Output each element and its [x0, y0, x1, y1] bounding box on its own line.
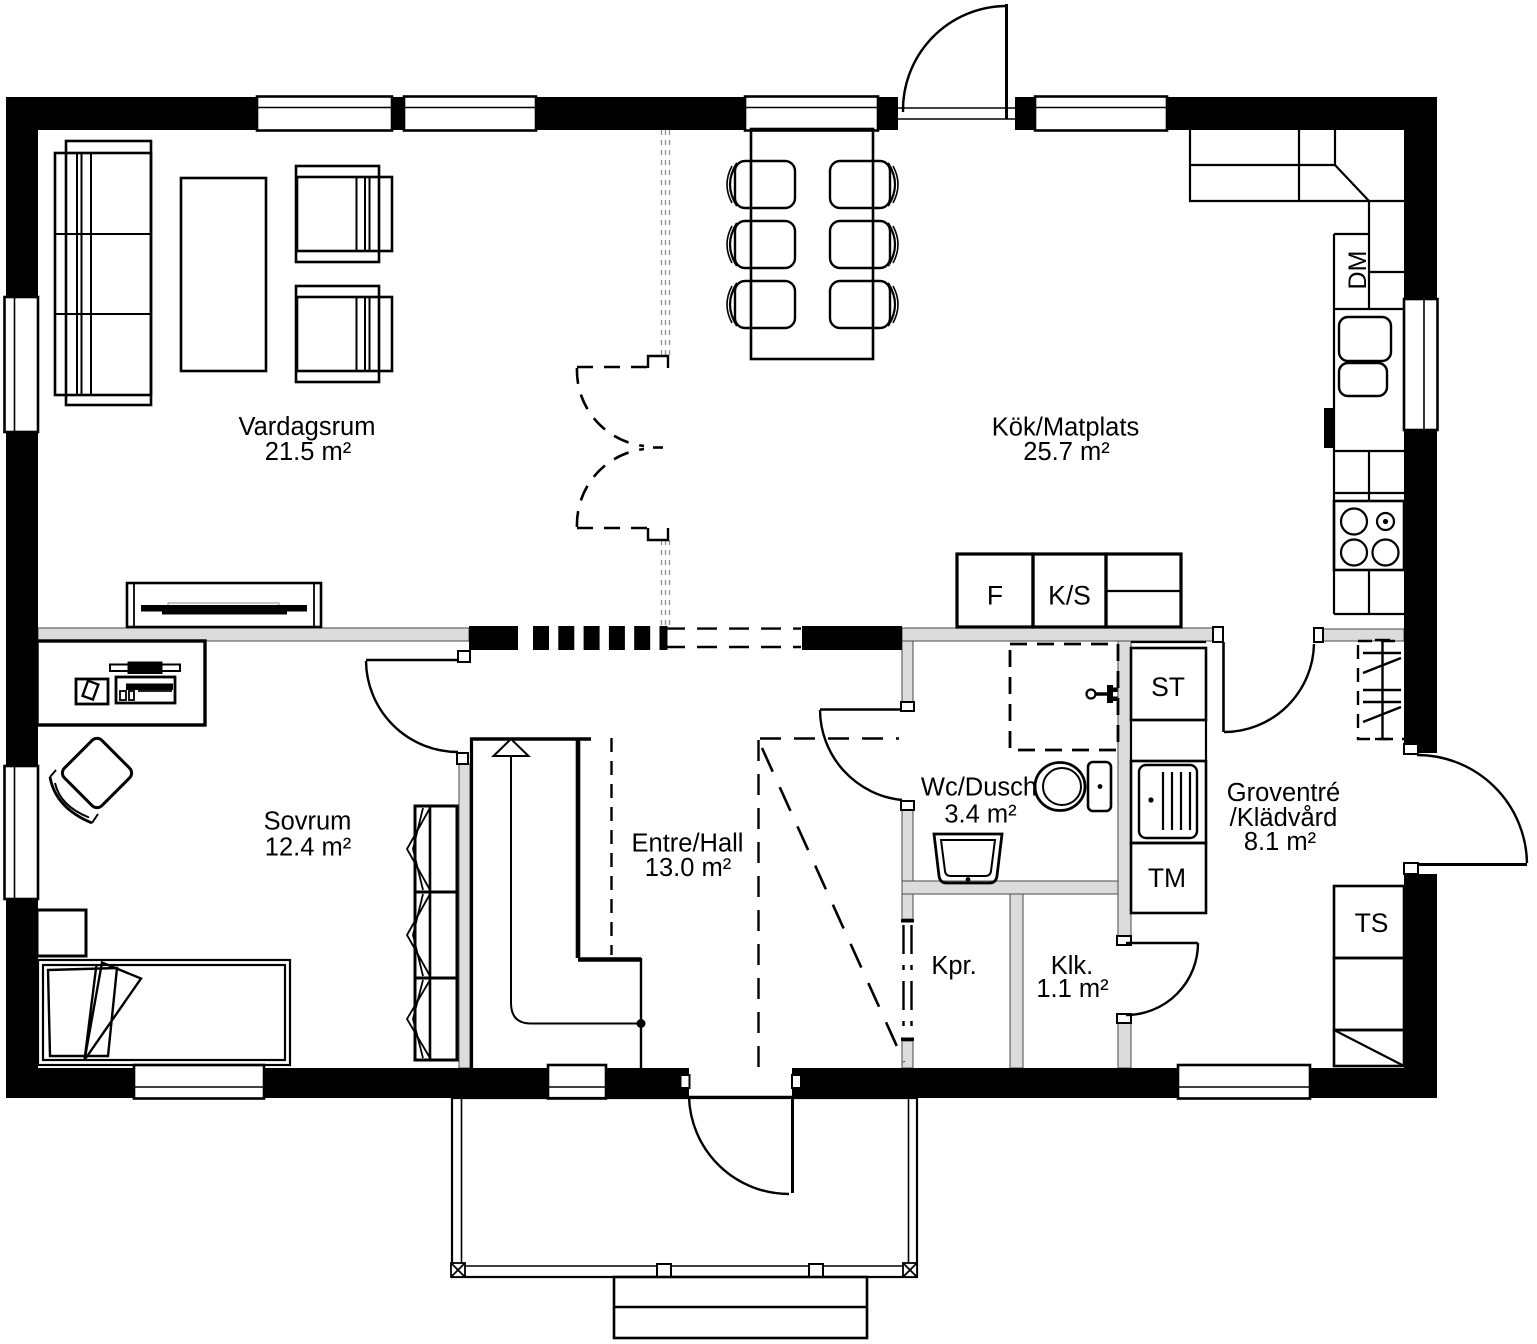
- svg-text:Wc/Dusch: Wc/Dusch: [921, 774, 1037, 802]
- svg-text:Sovrum: Sovrum: [264, 808, 352, 836]
- svg-text:21.5 m²: 21.5 m²: [265, 438, 351, 466]
- svg-text:ST: ST: [1151, 672, 1185, 702]
- svg-text:Vardagsrum: Vardagsrum: [238, 413, 375, 441]
- svg-text:K/S: K/S: [1048, 581, 1091, 611]
- svg-text:TS: TS: [1355, 908, 1389, 938]
- svg-text:12.4 m²: 12.4 m²: [265, 834, 351, 862]
- svg-text:DM: DM: [1344, 251, 1372, 290]
- svg-text:13.0 m²: 13.0 m²: [645, 854, 731, 882]
- svg-text:F: F: [987, 581, 1003, 611]
- svg-text:3.4 m²: 3.4 m²: [944, 801, 1016, 829]
- svg-text:TM: TM: [1148, 863, 1186, 893]
- svg-text:25.7 m²: 25.7 m²: [1023, 438, 1109, 466]
- svg-text:Groventré: Groventré: [1227, 779, 1340, 807]
- svg-text:1.1 m²: 1.1 m²: [1036, 975, 1108, 1003]
- svg-text:Kpr.: Kpr.: [931, 952, 976, 980]
- svg-text:8.1 m²: 8.1 m²: [1244, 828, 1316, 856]
